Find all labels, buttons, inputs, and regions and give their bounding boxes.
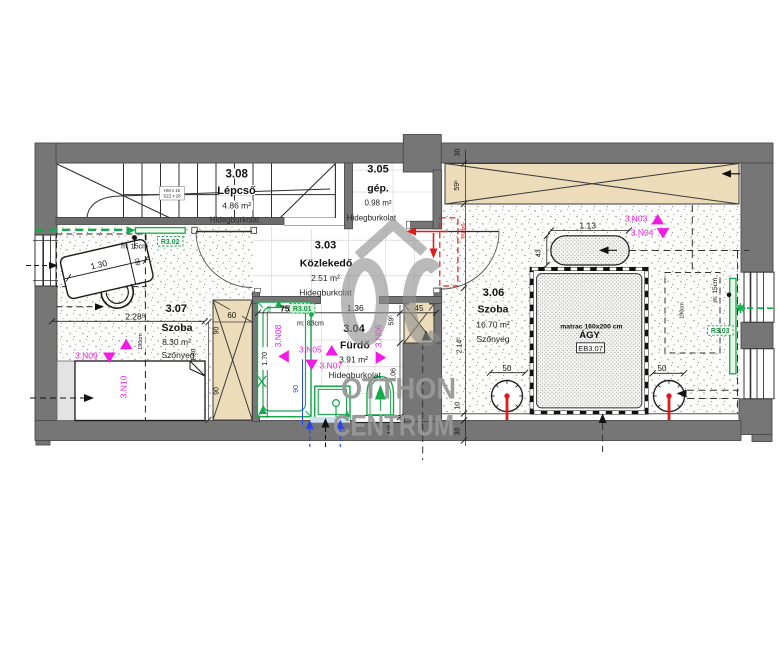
svg-text:CENTRUM: CENTRUM [333, 410, 454, 443]
svg-text:3.N09: 3.N09 [75, 351, 98, 361]
svg-text:50: 50 [658, 364, 667, 373]
svg-text:60: 60 [267, 306, 273, 312]
svg-text:R3.02: R3.02 [161, 239, 180, 246]
svg-text:3.91 m²: 3.91 m² [339, 355, 368, 365]
svg-text:90: 90 [293, 385, 300, 393]
svg-text:Szőnyeg: Szőnyeg [476, 334, 509, 344]
svg-text:94ma: 94ma [459, 223, 466, 239]
svg-text:ÁGY: ÁGY [579, 330, 600, 341]
svg-text:8.30 m²: 8.30 m² [162, 337, 191, 347]
svg-text:50: 50 [503, 364, 512, 373]
svg-text:OTTHON: OTTHON [341, 373, 456, 406]
svg-text:3.N05: 3.N05 [299, 345, 322, 355]
svg-text:16.70 m²: 16.70 m² [476, 320, 510, 330]
svg-text:30: 30 [455, 428, 462, 436]
svg-text:HM x 15: HM x 15 [164, 188, 181, 193]
svg-text:Hidegburkolat: Hidegburkolat [347, 213, 397, 222]
svg-text:EB3.07: EB3.07 [578, 344, 603, 353]
svg-text:Szoba: Szoba [478, 304, 509, 316]
svg-text:30: 30 [455, 149, 462, 157]
svg-text:m: 83cm: m: 83cm [297, 321, 324, 328]
svg-text:190cm: 190cm [679, 302, 685, 319]
svg-text:190cm: 190cm [138, 333, 144, 350]
svg-text:90: 90 [213, 327, 220, 335]
svg-text:Szoba: Szoba [162, 322, 193, 334]
svg-text:3.06: 3.06 [483, 287, 504, 299]
svg-text:1.70: 1.70 [262, 352, 269, 366]
svg-text:3.N03: 3.N03 [625, 213, 648, 223]
svg-text:75: 75 [280, 303, 290, 313]
svg-text:3.N08: 3.N08 [273, 324, 283, 347]
svg-text:2.51 m²: 2.51 m² [311, 273, 340, 283]
svg-text:3.08: 3.08 [226, 169, 249, 181]
svg-text:3.07: 3.07 [166, 303, 187, 315]
svg-text:60: 60 [227, 311, 236, 320]
svg-text:Közlekedő: Közlekedő [300, 258, 353, 270]
svg-text:Szőnyeg: Szőnyeg [161, 350, 194, 360]
svg-text:Lépcső: Lépcső [217, 185, 256, 197]
svg-text:3.05: 3.05 [367, 164, 388, 176]
svg-text:gép.: gép. [367, 183, 389, 195]
svg-text:1.13: 1.13 [579, 220, 596, 230]
svg-text:43: 43 [535, 249, 542, 257]
svg-text:3.N07: 3.N07 [320, 361, 343, 371]
svg-text:4.86 m²: 4.86 m² [222, 201, 251, 211]
svg-text:90: 90 [213, 387, 220, 395]
svg-text:3.03: 3.03 [315, 240, 336, 252]
svg-text:R3.01: R3.01 [293, 306, 312, 313]
svg-text:3.N10: 3.N10 [119, 375, 129, 398]
svg-text:SZ2 x 28: SZ2 x 28 [163, 194, 181, 199]
svg-text:m: 15cm: m: 15cm [712, 278, 719, 303]
svg-text:3.N04: 3.N04 [631, 228, 654, 238]
svg-text:0.98 m²: 0.98 m² [364, 199, 391, 208]
svg-text:Hidegburkolat: Hidegburkolat [210, 215, 260, 224]
